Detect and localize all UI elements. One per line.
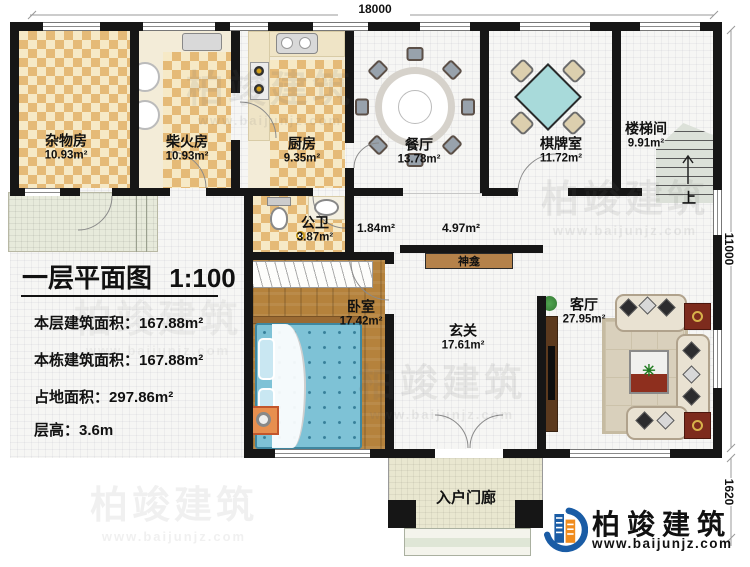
title-text: 一层平面图 xyxy=(22,263,152,293)
room-label-firewood: 柴火房10.93m² xyxy=(166,134,209,165)
end-table-ring xyxy=(692,311,703,322)
room-label-chess: 棋牌室11.72m² xyxy=(540,136,582,167)
wall xyxy=(345,31,354,143)
toilet-tank xyxy=(267,197,291,206)
porch-steps xyxy=(404,528,531,556)
stairs-up-label: 上 xyxy=(682,188,696,208)
dining-chair xyxy=(355,99,369,116)
room-label-storage: 杂物房10.93m² xyxy=(45,133,88,164)
wall xyxy=(537,296,546,449)
coffee-table: ✳ xyxy=(629,350,669,394)
stat-building-area: 本栋建筑面积：167.88m² xyxy=(34,349,203,370)
entry-door-gap xyxy=(435,449,503,458)
title-scale: 1:100 xyxy=(169,263,236,293)
sink-basin xyxy=(281,37,293,49)
hall-area-label: 4.97m² xyxy=(442,221,480,235)
wall xyxy=(206,188,252,196)
wall xyxy=(612,31,621,193)
dining-chair xyxy=(461,99,475,116)
watermark: 柏竣建筑www.baijunjz.com xyxy=(34,474,314,544)
room-label-dining: 餐厅13.78m² xyxy=(398,137,441,168)
wall xyxy=(480,31,489,193)
room-label-bedroom: 卧室17.42m² xyxy=(340,299,383,330)
shrine-label: 神龛 xyxy=(458,253,480,269)
wall xyxy=(482,188,518,196)
pillow xyxy=(258,338,275,380)
wardrobe xyxy=(252,261,373,288)
window xyxy=(230,22,268,31)
dining-chair xyxy=(407,47,424,61)
wall xyxy=(231,31,240,93)
hall-area-label: 1.84m² xyxy=(357,221,395,235)
wall xyxy=(252,188,313,196)
sofa-bottom xyxy=(626,406,688,440)
window xyxy=(275,449,370,458)
window xyxy=(420,22,470,31)
logo-url: www.baijunjz.com xyxy=(592,536,733,551)
room-label-living: 客厅27.95m² xyxy=(563,297,606,328)
dimension-right: 11000 xyxy=(722,219,736,279)
window xyxy=(713,330,722,388)
end-table-ring xyxy=(692,420,703,431)
wall xyxy=(612,188,642,196)
room-label-kitchen: 厨房9.35m² xyxy=(284,136,320,167)
toilet-bowl xyxy=(270,207,288,230)
floor-edge-line xyxy=(403,193,482,194)
wall xyxy=(10,188,25,196)
window xyxy=(570,449,670,458)
logo-icon xyxy=(540,502,588,558)
plant-icon: ✳ xyxy=(642,363,655,380)
storage-room-floor xyxy=(19,31,130,188)
window xyxy=(713,190,722,235)
wall xyxy=(231,140,240,188)
dimension-top: 18000 xyxy=(340,2,410,16)
wall xyxy=(353,188,403,196)
floor-plan-canvas: ✳ xyxy=(0,0,750,567)
wall xyxy=(130,31,139,188)
bedside-lamp xyxy=(256,412,271,427)
end-table xyxy=(684,303,711,330)
stat-footprint-area: 占地面积：297.86m² xyxy=(34,386,173,407)
wall xyxy=(345,196,354,258)
window xyxy=(520,22,590,31)
stove-burner xyxy=(254,66,264,76)
room-label-foyer: 玄关17.61m² xyxy=(442,323,485,354)
porch-pillar xyxy=(388,500,416,528)
page-title: 一层平面图 1:100 xyxy=(22,258,236,295)
window xyxy=(25,188,60,196)
porch-pillar xyxy=(515,500,543,528)
porch-label: 入户门廊 xyxy=(436,487,496,508)
bath-sink xyxy=(314,199,339,216)
firewood-room-tiles xyxy=(163,52,231,188)
window xyxy=(313,22,368,31)
end-table xyxy=(684,412,711,439)
title-underline xyxy=(21,295,218,297)
room-label-bathroom: 公卫3.87m² xyxy=(297,215,333,246)
wall xyxy=(400,245,543,253)
window xyxy=(640,22,700,31)
wall xyxy=(244,252,393,260)
stat-storey-height: 层高：3.6m xyxy=(34,419,113,440)
dining-table-center xyxy=(398,90,432,124)
wood-stove-sink xyxy=(182,33,222,51)
wall xyxy=(60,188,80,196)
stove-burner xyxy=(254,84,264,94)
room-label-stairwell: 楼梯间9.91m² xyxy=(625,121,667,152)
patio-column-line xyxy=(136,192,137,252)
wall xyxy=(244,188,253,449)
wall xyxy=(10,22,19,196)
window xyxy=(143,22,215,31)
wall xyxy=(112,188,170,196)
tv xyxy=(548,346,555,400)
wall xyxy=(385,314,394,449)
patio-column-line xyxy=(146,192,147,252)
window xyxy=(43,22,100,31)
wall xyxy=(713,22,722,458)
stat-floor-area: 本层建筑面积：167.88m² xyxy=(34,312,203,333)
kitchen-tiles xyxy=(270,60,345,188)
sink-basin xyxy=(299,37,311,49)
